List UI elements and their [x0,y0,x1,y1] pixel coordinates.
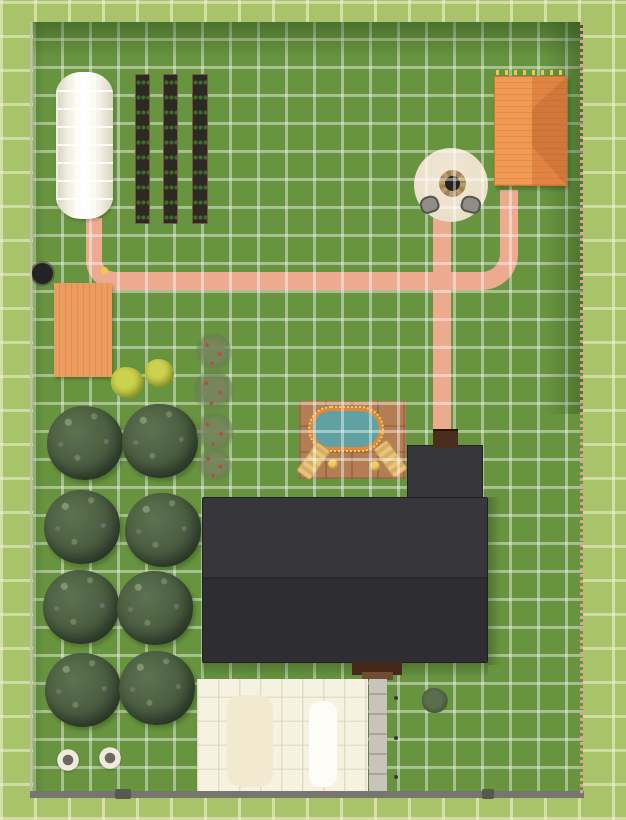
yellow-shrub[interactable] [111,367,144,398]
greenhouse[interactable] [56,72,113,219]
garden-plan-canvas [0,0,626,820]
orchard-tree[interactable] [119,651,195,725]
garden-well[interactable] [32,263,53,284]
fence-post-dot [394,775,398,779]
fence-right-flower-line [580,22,583,793]
small-shrub[interactable] [422,688,448,713]
fruit-tree[interactable] [198,448,232,484]
orchard-tree[interactable] [122,404,198,478]
flower-icon [101,267,108,274]
side-table[interactable] [370,461,380,471]
garden-bed[interactable] [192,74,208,224]
garden-bed[interactable] [135,74,150,224]
fruit-tree[interactable] [194,370,234,414]
fence-left [30,22,32,793]
timber-deck[interactable] [54,283,112,377]
fruit-tree[interactable] [196,333,232,373]
fence-shadow-top [33,22,583,58]
fence-shadow-left [33,22,45,793]
fence-bottom [30,791,584,798]
yellow-shrub[interactable] [145,359,174,387]
house-roof[interactable] [202,497,488,663]
house-shadow-right [488,497,501,665]
fence-post [482,789,494,799]
sun-lounger[interactable] [296,441,331,480]
firepit[interactable] [439,170,466,197]
orchard-tree[interactable] [47,406,123,480]
garden-bed[interactable] [163,74,178,224]
firepit-coals [445,176,460,191]
orchard-tree[interactable] [125,493,201,567]
fence-post [115,789,131,799]
house-shadow [202,661,488,678]
sun-lounger[interactable] [373,439,408,478]
path-firepit[interactable] [433,200,451,435]
orchard-tree[interactable] [44,490,120,564]
orchard-tree[interactable] [43,570,119,644]
orchard-tree[interactable] [117,571,193,645]
pool-patio[interactable] [299,401,406,479]
chimney[interactable] [433,429,458,448]
side-table[interactable] [328,459,338,469]
garage-roof[interactable] [197,679,368,794]
orchard-tree[interactable] [45,653,121,727]
garden-shed[interactable] [494,76,567,186]
house-roof-extension[interactable] [407,445,483,498]
fence-post-dot [394,696,398,700]
flower-row [496,70,566,75]
fence-post-dot [394,736,398,740]
walkway[interactable] [369,679,387,795]
round-planter[interactable] [99,747,121,769]
round-planter[interactable] [57,749,79,771]
